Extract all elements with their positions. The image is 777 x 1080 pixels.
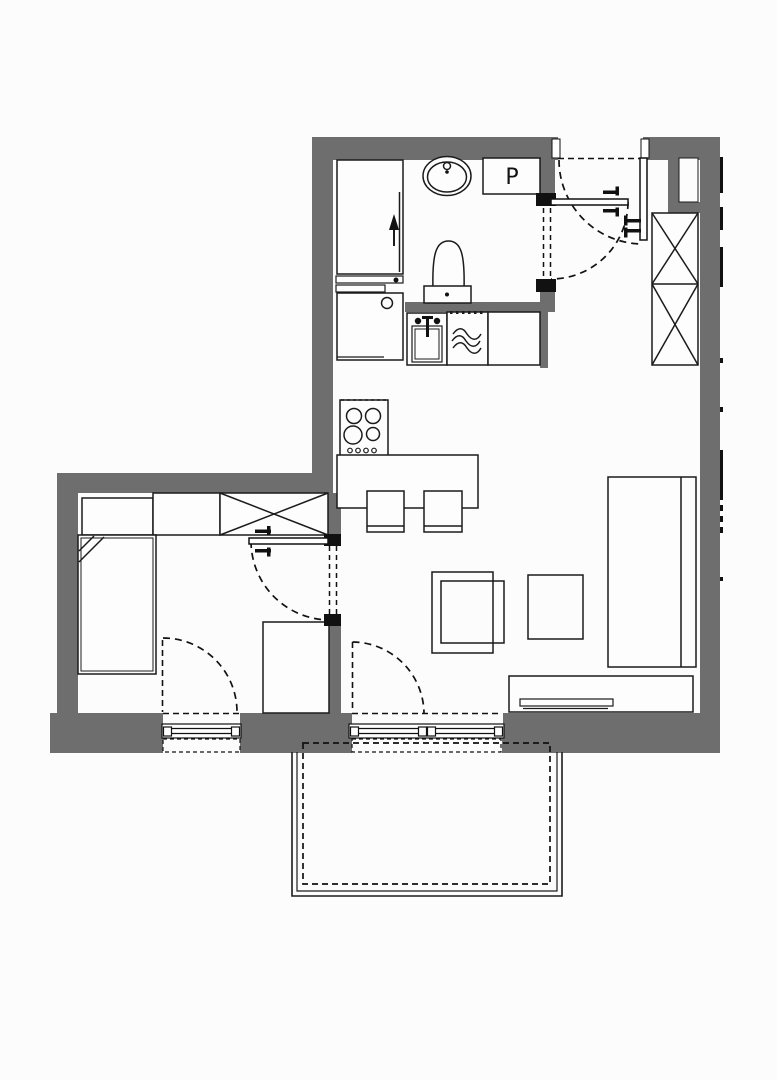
wall-tick — [720, 207, 723, 230]
desk — [263, 622, 329, 713]
wall-tick — [720, 450, 723, 500]
sink-faucet-bar — [422, 316, 433, 319]
wall-south-inner-2 — [240, 713, 352, 737]
wall-tick — [720, 157, 723, 193]
wall-kitchen-pillar — [540, 312, 548, 368]
shower-door-pivot — [394, 278, 399, 283]
living-window-block-2 — [419, 727, 427, 736]
wall-top-left — [312, 137, 558, 160]
balcony-floor-outline — [303, 743, 550, 884]
sofa — [608, 477, 696, 667]
east-wall-ticks — [720, 157, 723, 581]
wall-west-column — [312, 160, 333, 493]
bedroom-window-recess — [163, 739, 240, 752]
bed — [78, 535, 156, 674]
wall-tick — [720, 577, 723, 581]
entry-jamb-left — [552, 139, 560, 158]
bath-door-handle-3 — [616, 187, 620, 196]
entry-jamb-right — [641, 139, 649, 158]
living-window-block-4 — [495, 727, 503, 736]
bath-hinge-bottom — [536, 279, 556, 292]
sink-faucet-stem — [426, 317, 429, 337]
toilet-button — [445, 293, 449, 297]
wall-tick — [720, 358, 723, 363]
wall-tick — [720, 527, 723, 533]
shower-ledge-2 — [336, 285, 385, 292]
coffee-table-b — [441, 581, 504, 643]
wall-south-inner-3 — [503, 713, 700, 737]
bedroom-window-frame — [162, 724, 241, 738]
wall-tick — [720, 505, 723, 511]
balcony-balustrade-inner — [297, 752, 557, 891]
wall-top-right — [643, 137, 720, 160]
floor-plan-drawing: P — [0, 0, 777, 1080]
living-window-block-3 — [428, 727, 436, 736]
bath-door-leaf — [551, 199, 628, 205]
bed-headboard — [82, 498, 153, 535]
wall-partition-lower — [328, 626, 341, 713]
bedroom-window-block-l — [164, 727, 172, 736]
entry-door-handle-1 — [627, 219, 641, 223]
bedroom-door-leaf — [249, 538, 328, 544]
floor-plan: P — [0, 0, 777, 1080]
balcony — [292, 743, 562, 896]
living-window-block-1 — [351, 727, 359, 736]
sink-tap-left — [415, 318, 421, 324]
wall-south-outer-3 — [502, 737, 720, 753]
balcony-door-2-arc — [353, 642, 425, 714]
kitchen-cabinet — [488, 312, 540, 365]
entry-door-handle-4 — [624, 228, 628, 238]
bedroom-door-handle-3 — [267, 526, 271, 535]
wall-tick — [720, 516, 723, 522]
entry-jambs — [552, 139, 649, 158]
bedroom-door-handle-4 — [267, 548, 271, 557]
duct-shaft-niche — [679, 158, 698, 202]
wall-south-outer-2 — [240, 737, 352, 753]
bedroom-window-block-r — [232, 727, 240, 736]
wall-south-inner-1 — [50, 713, 163, 737]
sink-tap-right — [434, 318, 440, 324]
toilet-bowl — [433, 241, 464, 290]
entry-door-leaf — [640, 158, 647, 240]
wall-shaft-horizontal — [668, 202, 700, 213]
hall-wardrobe — [652, 213, 698, 365]
wall-bedroom-north — [57, 473, 333, 493]
bath-door-handle-4 — [616, 208, 620, 217]
washing-machine-label: P — [505, 165, 518, 190]
wall-south-outer-1 — [50, 737, 163, 753]
tv — [520, 699, 613, 706]
living-room — [432, 477, 696, 712]
wall-tick — [720, 247, 723, 287]
doors — [163, 158, 648, 714]
side-table — [528, 575, 583, 639]
living-window-recess — [352, 739, 501, 752]
washbasin-drain — [445, 170, 449, 174]
hall — [652, 213, 698, 365]
wall-bath-pillar-top — [540, 160, 555, 196]
wall-east — [700, 160, 720, 753]
bedroom — [78, 493, 329, 713]
bedroom-door-arc — [251, 541, 330, 620]
balcony-door-1-arc — [163, 638, 237, 712]
shower-ledge-1 — [336, 276, 403, 283]
balcony-balustrade-outer — [292, 752, 562, 896]
wall-tick — [720, 407, 723, 412]
entry-door-handle-2 — [627, 229, 641, 233]
dresser — [153, 493, 220, 535]
